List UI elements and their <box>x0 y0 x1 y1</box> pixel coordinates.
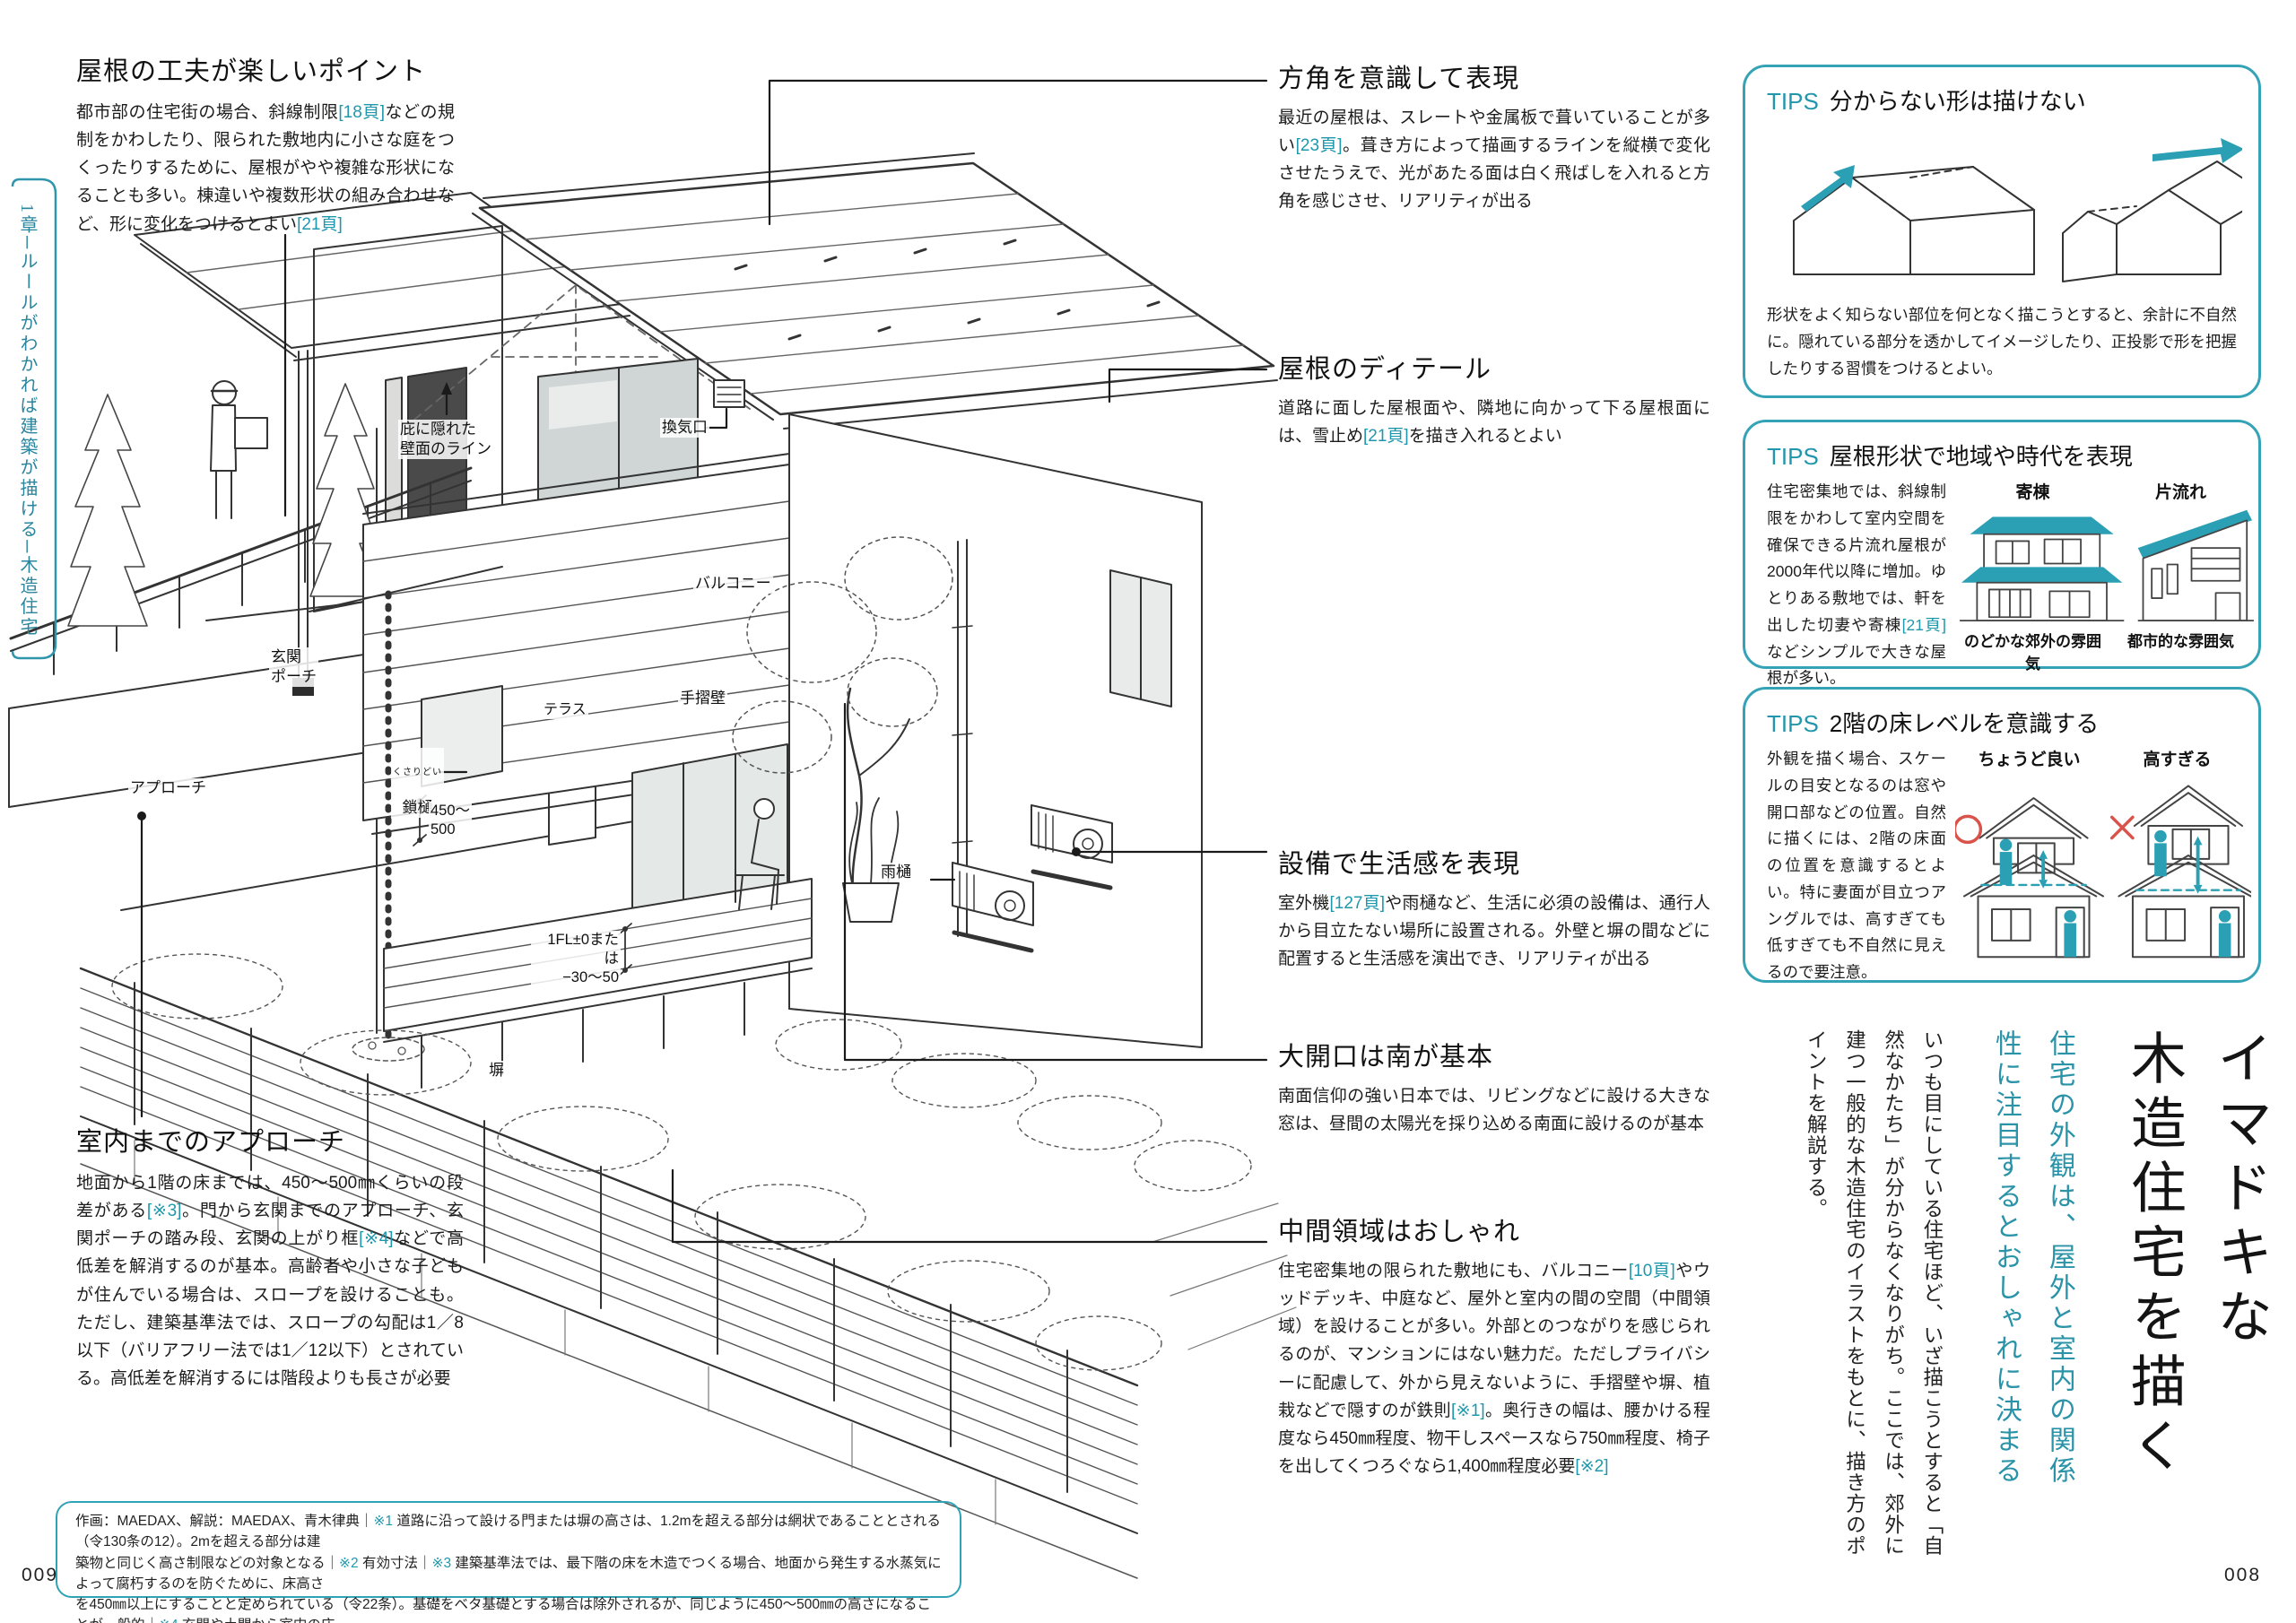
tips2-diagram <box>1959 503 2255 624</box>
label-approach: アプローチ <box>128 778 208 798</box>
section-approach: 室内までのアプローチ 地面から1階の床までは、450〜500㎜くらいの段差がある… <box>76 1121 464 1393</box>
section-body: 室外機[127頁]や雨樋など、生活に必須の設備は、通行人から目立たない場所に設置… <box>1278 890 1710 973</box>
diagram-label-just-right: ちょうど良い <box>1955 746 2103 770</box>
section-heading: 屋根の工夫が楽しいポイント <box>76 50 455 88</box>
bad-mark-icon <box>2112 817 2133 838</box>
label-rain-gutter: 雨樋 <box>879 863 913 882</box>
page-title-block: イマドキな 木造住宅を描く 住宅の外観は、屋外と室内の関係 性に注目するとおしゃ… <box>1796 1029 2282 1590</box>
tips3-diagram <box>1955 770 2251 966</box>
section-heading: 中間領域はおしゃれ <box>1278 1211 1710 1248</box>
tips-label: TIPS <box>1767 443 1819 470</box>
page-title: イマドキな 木造住宅を描く <box>2109 1029 2282 1590</box>
tips-title: TIPS分からない形は描けない <box>1767 83 2237 117</box>
tips-body: 住宅密集地では、斜線制限をかわして室内空間を確保できる片流れ屋根が2000年代以… <box>1767 479 1946 692</box>
section-equipment: 設備で生活感を表現 室外機[127頁]や雨樋など、生活に必須の設備は、通行人から… <box>1278 843 1710 973</box>
arrow-icon <box>2152 138 2242 163</box>
section-heading: 大開口は南が基本 <box>1278 1036 1710 1073</box>
label-balcony: バルコニー <box>693 574 773 594</box>
label-terrace: テラス <box>542 701 588 719</box>
section-body: 住宅密集地の限られた敷地にも、バルコニー[10頁]やウッドデッキ、中庭など、屋外… <box>1278 1257 1710 1480</box>
tips-title: TIPS屋根形状で地域や時代を表現 <box>1767 438 2237 472</box>
section-roof-detail: 屋根のディテール 道路に面した屋根面や、隣地に向かって下る屋根面には、雪止め[2… <box>1278 348 1710 450</box>
footnote-line: 作画：MAEDAX、解説：MAEDAX、青木律典｜※1 道路に沿って設ける門また… <box>75 1511 942 1553</box>
section-roof-point: 屋根の工夫が楽しいポイント 都市部の住宅街の場合、斜線制限[18頁]などの規制を… <box>76 50 455 239</box>
section-direction: 方角を意識して表現 最近の屋根は、スレートや金属板で葺いていることが多い[23頁… <box>1278 57 1710 216</box>
diagram-caption-suburban: のどかな郊外の雰囲気 <box>1959 629 2107 673</box>
tips-body: 外観を描く場合、スケールの目安となるのは窓や開口部などの位置。自然に描くには、2… <box>1767 746 1946 986</box>
tips-label: TIPS <box>1767 710 1819 737</box>
section-heading: 屋根のディテール <box>1278 348 1710 386</box>
diagram-caption-urban: 都市的な雰囲気 <box>2107 629 2255 673</box>
tips-box-unknown-shapes: TIPS分からない形は描けない 形状をよく知らない部位を何となく描こうとすると、… <box>1743 65 2261 398</box>
footnote-line: 築物と同じく高さ制限などの対象となる｜※2 有効寸法｜※3 建築基準法では、最下… <box>75 1553 942 1595</box>
diagram-label-shed-roof: 片流れ <box>2107 479 2255 503</box>
section-body: 最近の屋根は、スレートや金属板で葺いていることが多い[23頁]。葺き方によって描… <box>1278 104 1710 216</box>
label-vent: 換気口 <box>660 418 709 438</box>
tips-title: TIPS2階の床レベルを意識する <box>1767 706 2237 739</box>
label-entrance-porch: 玄関 ポーチ <box>269 647 318 687</box>
label-fence: 塀 <box>487 1061 506 1081</box>
book-spread: 1章─ルールがわかれば建築が描ける─木造住宅 屋根の工夫が楽しいポイント 都市部… <box>0 0 2296 1623</box>
label-1fl-level: 1FL±0または −30〜50 <box>531 931 621 987</box>
section-heading: 室内までのアプローチ <box>76 1121 464 1159</box>
tips-label: TIPS <box>1767 88 1819 115</box>
footnote-box: 作画：MAEDAX、解説：MAEDAX、青木律典｜※1 道路に沿って設ける門また… <box>56 1501 961 1598</box>
page-number-left: 009 <box>22 1565 58 1586</box>
section-intermediate: 中間領域はおしゃれ 住宅密集地の限られた敷地にも、バルコニー[10頁]やウッドデ… <box>1278 1211 1710 1480</box>
tips-box-floor-level: TIPS2階の床レベルを意識する 外観を描く場合、スケールの目安となるのは窓や開… <box>1743 687 2261 983</box>
tips1-diagram <box>1767 124 2242 292</box>
diagram-label-too-high: 高すぎる <box>2103 746 2251 770</box>
tips-body: 形状をよく知らない部位を何となく描こうとすると、余計に不自然に。隠れている部分を… <box>1767 302 2237 382</box>
section-body: 都市部の住宅街の場合、斜線制限[18頁]などの規制をかわしたり、限られた敷地内に… <box>76 99 455 239</box>
arrow-icon <box>1801 165 1855 212</box>
footnote-line: を450㎜以上にすることと定められている（令22条）。基礎をベタ基礎とする場合は… <box>75 1594 942 1623</box>
page-intro: いつも目にしている住宅ほど、いざ描こうとすると「自 然なかたち」が分からなくなり… <box>1796 1029 1979 1590</box>
section-body: 道路に面した屋根面や、隣地に向かって下る屋根面には、雪止め[21頁]を描き入れる… <box>1278 395 1710 450</box>
section-heading: 設備で生活感を表現 <box>1278 843 1710 881</box>
section-opening: 大開口は南が基本 南面信仰の強い日本では、リビングなどに設ける大きな窓は、昼間の… <box>1278 1036 1710 1138</box>
label-chain-furigana: くさりどい <box>393 768 442 779</box>
page-number-right: 008 <box>2224 1565 2261 1586</box>
label-dim-450-500: 450〜 500 <box>429 802 472 839</box>
diagram-label-hip-roof: 寄棟 <box>1959 479 2107 503</box>
section-heading: 方角を意識して表現 <box>1278 57 1710 95</box>
good-mark-icon <box>1955 816 1980 842</box>
section-body: 南面信仰の強い日本では、リビングなどに設ける大きな窓は、昼間の太陽光を採り込める… <box>1278 1082 1710 1138</box>
label-hidden-wall-line: 庇に隠れた 壁面のライン <box>398 420 493 459</box>
section-body: 地面から1階の床までは、450〜500㎜くらいの段差がある[※3]。門から玄関ま… <box>76 1169 464 1393</box>
tips-box-roof-shapes: TIPS屋根形状で地域や時代を表現 住宅密集地では、斜線制限をかわして室内空間を… <box>1743 420 2261 669</box>
chapter-tab: 1章─ルールがわかれば建築が描ける─木造住宅 <box>14 192 40 649</box>
label-rail-wall: 手摺壁 <box>678 689 727 708</box>
page-subtitle: 住宅の外観は、屋外と室内の関係 性に注目するとおしゃれに決まる <box>1979 1029 2109 1590</box>
